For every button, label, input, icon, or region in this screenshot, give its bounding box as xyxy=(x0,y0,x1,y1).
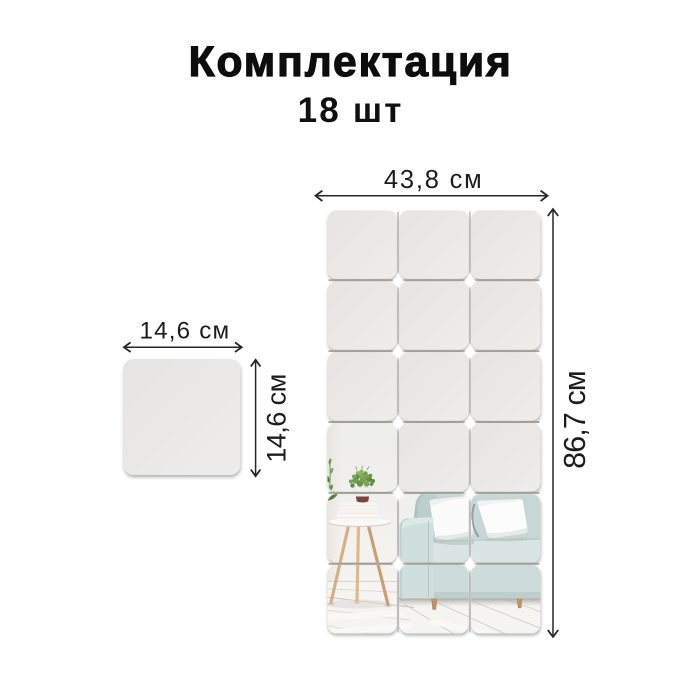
svg-text:14,6 см: 14,6 см xyxy=(261,374,292,463)
svg-text:14,6 см: 14,6 см xyxy=(139,318,230,345)
svg-text:43,8 см: 43,8 см xyxy=(384,166,484,194)
svg-text:Комплектация: Комплектация xyxy=(189,39,513,86)
svg-text:18 шт: 18 шт xyxy=(298,91,404,130)
svg-text:86,7 см: 86,7 см xyxy=(558,371,592,469)
